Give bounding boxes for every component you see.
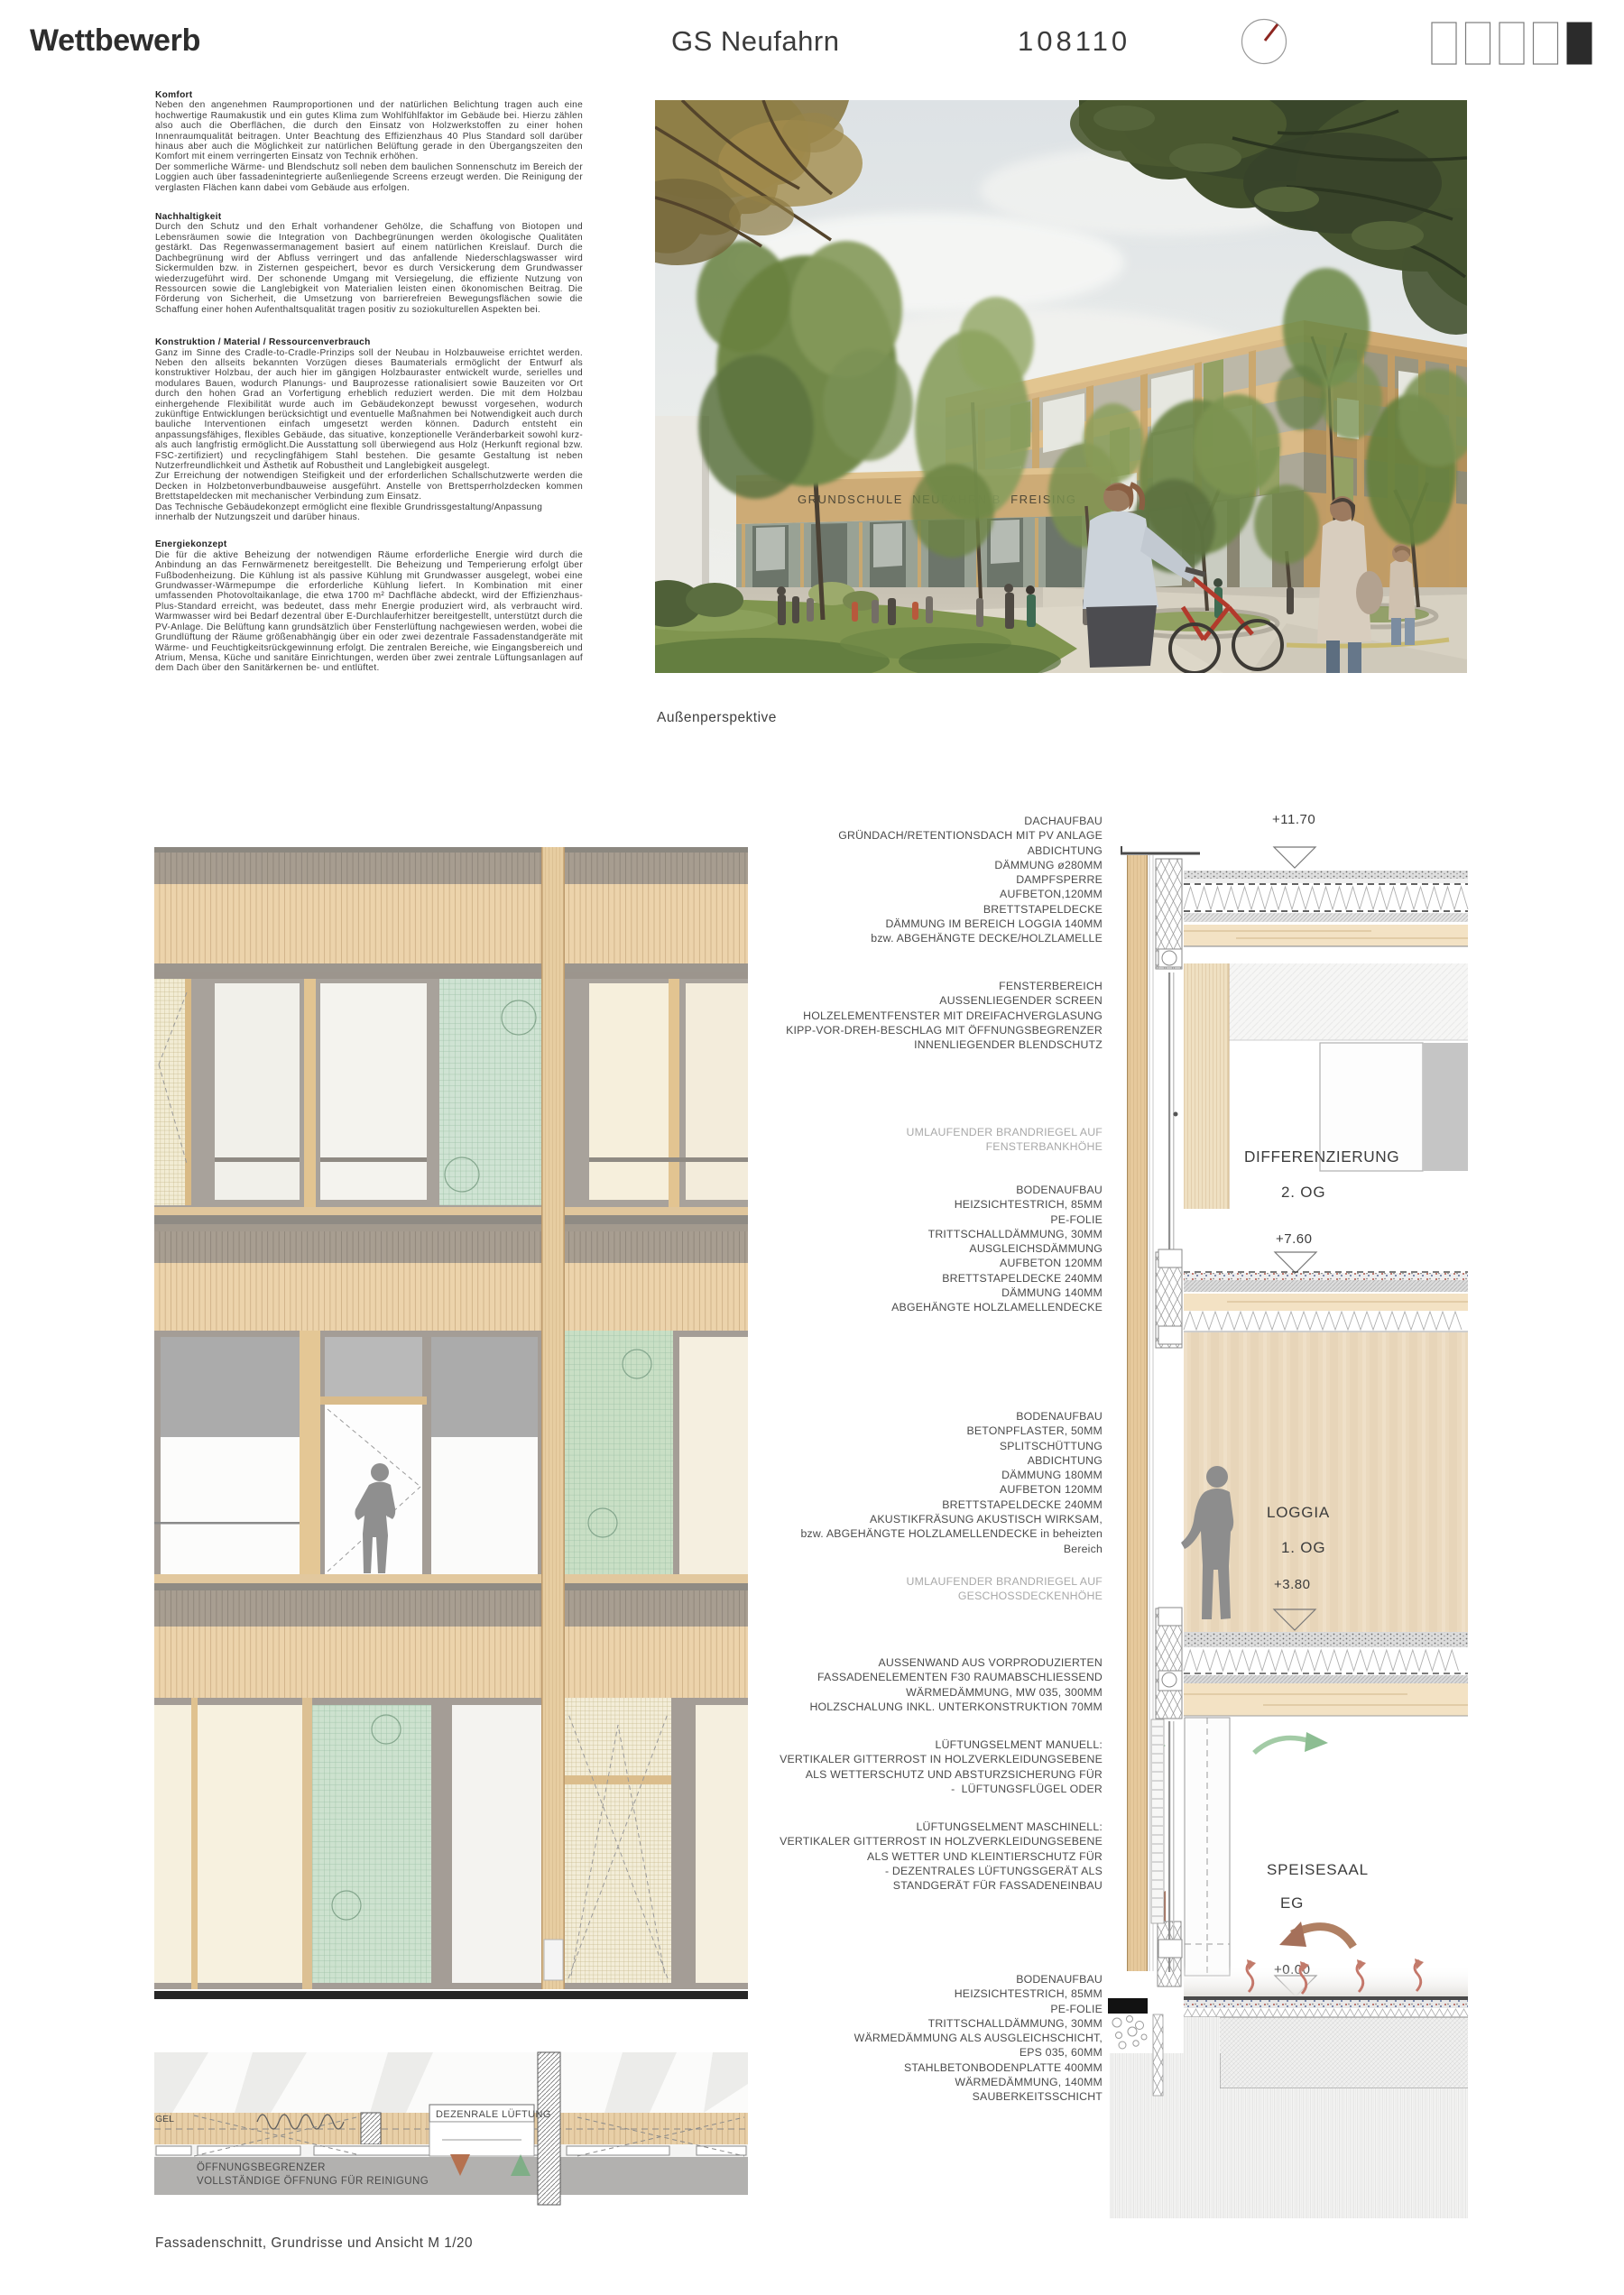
svg-text:DEZENRALE LÜFTUNG: DEZENRALE LÜFTUNG — [436, 2109, 551, 2120]
svg-text:2. OG: 2. OG — [1281, 1184, 1325, 1201]
svg-text:+11.70: +11.70 — [1272, 812, 1315, 827]
svg-text:LOGGIA: LOGGIA — [1267, 1504, 1330, 1521]
svg-text:GEL: GEL — [155, 2114, 174, 2124]
svg-text:SPEISESAAL: SPEISESAAL — [1267, 1861, 1369, 1878]
svg-text:ÖFFNUNGSBEGRENZER: ÖFFNUNGSBEGRENZER — [197, 2162, 326, 2173]
svg-text:VOLLSTÄNDIGE ÖFFNUNG FÜR REINI: VOLLSTÄNDIGE ÖFFNUNG FÜR REINIGUNG — [197, 2176, 429, 2187]
svg-text:EG: EG — [1280, 1894, 1304, 1912]
svg-text:+7.60: +7.60 — [1276, 1231, 1312, 1247]
svg-text:1. OG: 1. OG — [1281, 1539, 1325, 1556]
svg-text:+3.80: +3.80 — [1274, 1577, 1310, 1592]
svg-text:DIFFERENZIERUNG: DIFFERENZIERUNG — [1244, 1147, 1399, 1166]
